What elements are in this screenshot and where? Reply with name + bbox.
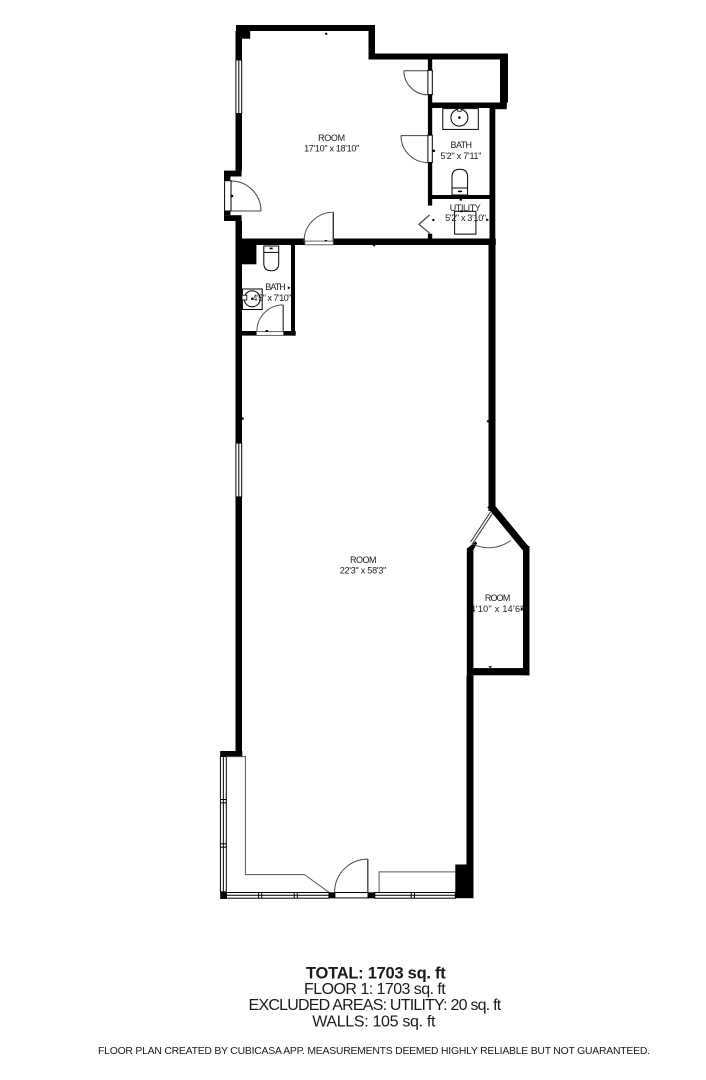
svg-text:UTILITY: UTILITY xyxy=(450,203,481,213)
svg-text:EXCLUDED AREAS: UTILITY: 20 sq: EXCLUDED AREAS: UTILITY: 20 sq. ft xyxy=(249,997,502,1014)
svg-text:22'3" x 58'3": 22'3" x 58'3" xyxy=(340,566,387,576)
svg-text:FLOOR 1: 1703 sq. ft: FLOOR 1: 1703 sq. ft xyxy=(304,981,446,998)
svg-text:17'10" x 18'10": 17'10" x 18'10" xyxy=(304,144,359,154)
svg-text:BATH: BATH xyxy=(451,140,473,150)
svg-text:ROOM: ROOM xyxy=(318,133,345,143)
svg-text:WALLS: 105 sq. ft: WALLS: 105 sq. ft xyxy=(312,1014,436,1031)
svg-text:5'2" x 3'10": 5'2" x 3'10" xyxy=(445,213,486,223)
svg-text:TOTAL: 1703 sq. ft: TOTAL: 1703 sq. ft xyxy=(306,964,446,982)
svg-text:FLOOR PLAN CREATED BY CUBICASA: FLOOR PLAN CREATED BY CUBICASA APP. MEAS… xyxy=(98,1046,650,1057)
svg-text:5'2" x 7'11": 5'2" x 7'11" xyxy=(441,151,482,161)
svg-text:BATH: BATH xyxy=(265,282,286,292)
svg-text:ROOM: ROOM xyxy=(485,593,510,603)
svg-text:ROOM: ROOM xyxy=(350,555,377,565)
svg-text:4'10" x 14'6": 4'10" x 14'6" xyxy=(471,604,524,614)
svg-text:4'5" x 7'10": 4'5" x 7'10" xyxy=(253,293,292,303)
